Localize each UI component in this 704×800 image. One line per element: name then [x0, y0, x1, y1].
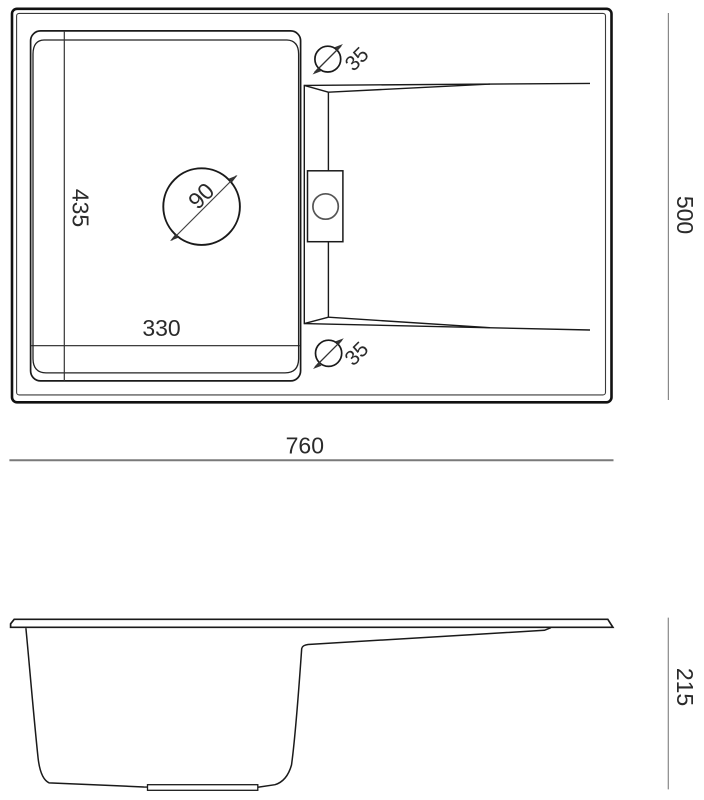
- svg-text:435: 435: [67, 189, 93, 227]
- svg-text:500: 500: [672, 196, 698, 234]
- svg-text:215: 215: [672, 668, 698, 706]
- svg-text:330: 330: [142, 315, 180, 341]
- svg-text:760: 760: [286, 433, 324, 459]
